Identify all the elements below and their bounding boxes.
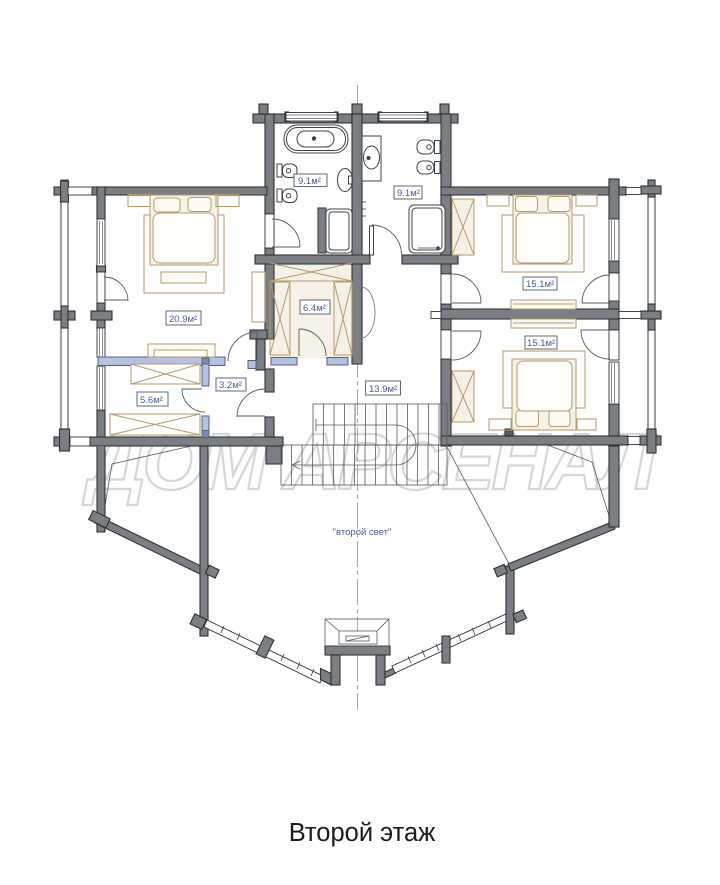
- svg-text:3.2м²: 3.2м²: [219, 380, 242, 391]
- svg-text:"второй свет": "второй свет": [333, 527, 392, 538]
- svg-text:13.9м²: 13.9м²: [369, 384, 397, 395]
- svg-text:9.1м²: 9.1м²: [298, 176, 321, 187]
- svg-text:Второй этаж: Второй этаж: [289, 819, 436, 847]
- svg-text:6.4м²: 6.4м²: [303, 303, 326, 314]
- svg-text:15.1м²: 15.1м²: [527, 338, 555, 349]
- svg-text:9.1м²: 9.1м²: [397, 188, 420, 199]
- svg-text:5.6м²: 5.6м²: [140, 395, 163, 406]
- svg-text:20.9м²: 20.9м²: [169, 314, 197, 325]
- svg-text:15.1м²: 15.1м²: [526, 279, 554, 290]
